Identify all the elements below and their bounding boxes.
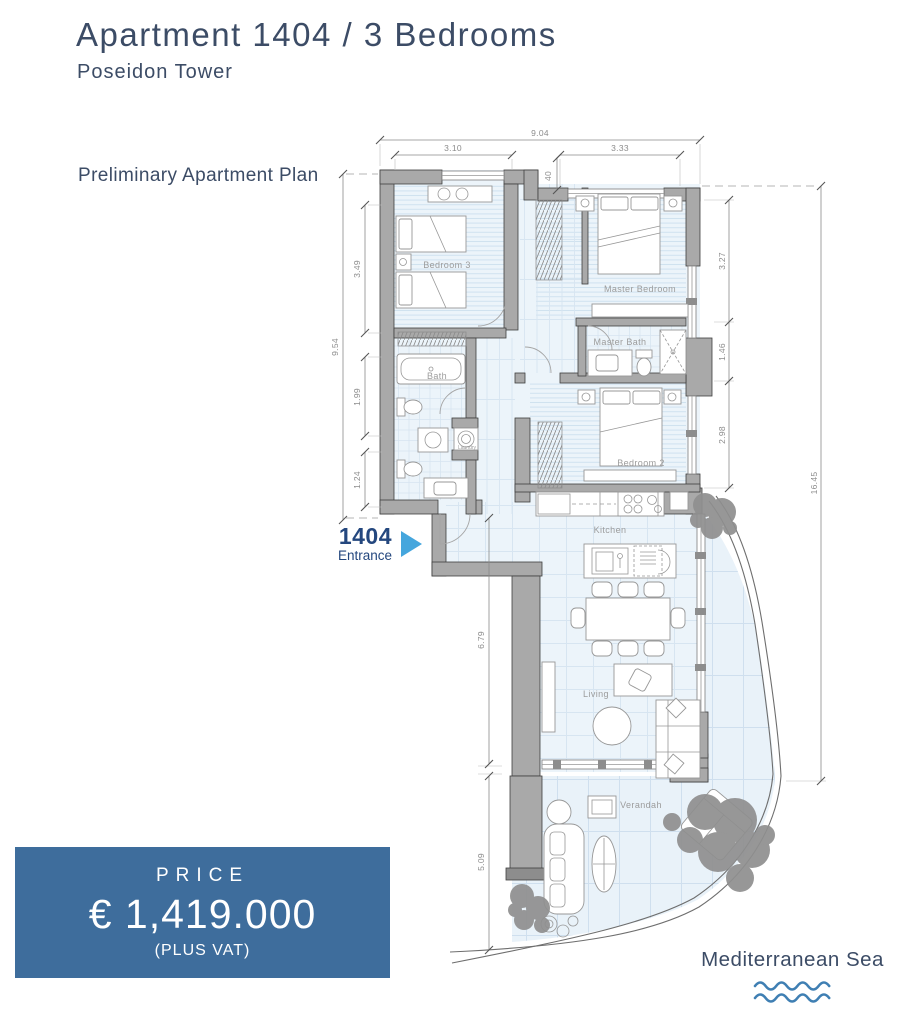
dim-top-right: 3.33 — [611, 143, 629, 153]
entrance-marker: 1404 Entrance — [326, 524, 422, 564]
page-title: Apartment 1404 / 3 Bedrooms — [76, 16, 557, 54]
dim-right-b: 1.46 — [717, 343, 727, 361]
sea-annotation: Mediterranean Sea — [700, 948, 885, 1011]
dim-top-left: 3.10 — [444, 143, 462, 153]
dim-right-a: 3.27 — [717, 252, 727, 270]
entrance-number: 1404 — [326, 524, 392, 549]
room-label-master-bath: Master Bath — [594, 337, 647, 347]
dim-left-total: 9.54 — [330, 338, 340, 356]
room-label-master-bedroom: Master Bedroom — [604, 284, 676, 294]
dimensions-lower: 6.79 5.09 — [476, 518, 489, 950]
dimensions-left: 9.54 3.49 1.99 1.24 — [330, 174, 382, 520]
dim-left-a: 3.49 — [352, 260, 362, 278]
entrance-arrow-icon — [401, 531, 422, 557]
room-label-bedroom3: Bedroom 3 — [423, 260, 471, 270]
plan-caption: Preliminary Apartment Plan — [78, 165, 319, 187]
dim-right-total: 16.45 — [809, 472, 819, 495]
dim-lower-b: 5.09 — [476, 853, 486, 871]
room-label-kitchen: Kitchen — [594, 525, 627, 535]
dim-top-step: 40 — [543, 171, 553, 181]
price-amount: € 1,419.000 — [89, 891, 317, 938]
room-label-living: Living — [583, 689, 609, 699]
entrance-label: Entrance — [326, 549, 392, 564]
room-label-laundry: Laundry — [458, 445, 477, 451]
waves-icon — [751, 978, 835, 1006]
brochure-page: 9.04 3.10 3.33 40 9.54 3.49 1.99 1.24 3.… — [0, 0, 902, 1024]
page-subtitle: Poseidon Tower — [77, 61, 233, 84]
dim-right-c: 2.98 — [717, 426, 727, 444]
dim-lower-a: 6.79 — [476, 631, 486, 649]
dim-left-b: 1.99 — [352, 388, 362, 406]
room-label-bath: Bath — [427, 371, 447, 381]
room-label-bedroom2: Bedroom 2 — [617, 458, 665, 468]
price-heading: PRICE — [156, 865, 249, 887]
dim-left-c: 1.24 — [352, 471, 362, 489]
sea-label: Mediterranean Sea — [700, 948, 885, 972]
room-label-verandah: Verandah — [620, 800, 662, 810]
dim-top-total: 9.04 — [531, 128, 549, 138]
price-vat-note: (PLUS VAT) — [155, 942, 251, 960]
price-box: PRICE € 1,419.000 (PLUS VAT) — [15, 847, 390, 978]
